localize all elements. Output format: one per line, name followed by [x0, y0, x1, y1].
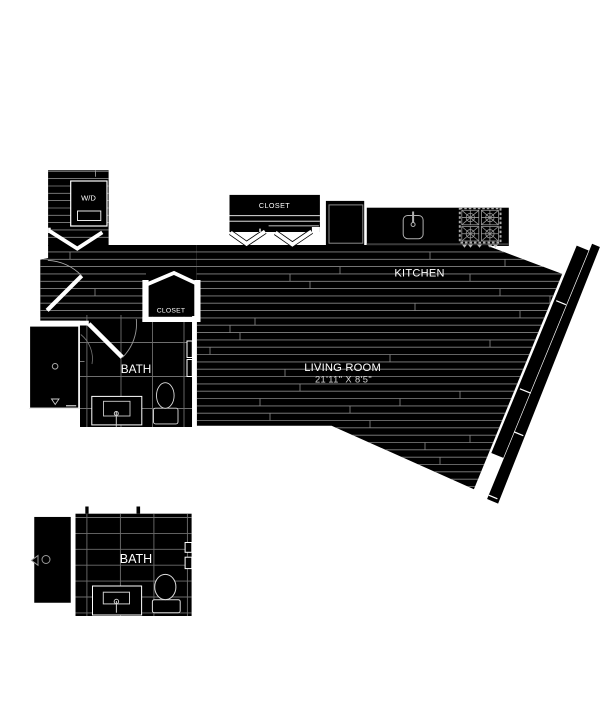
- svg-text:CLOSET: CLOSET: [157, 308, 185, 315]
- svg-text:21'11" X 8'5": 21'11" X 8'5": [315, 374, 372, 384]
- svg-text:LIVING ROOM: LIVING ROOM: [304, 362, 381, 374]
- svg-text:W/D: W/D: [81, 193, 96, 202]
- svg-text:BATH: BATH: [120, 552, 152, 566]
- svg-text:CLOSET: CLOSET: [259, 201, 290, 210]
- svg-text:BATH: BATH: [121, 362, 152, 376]
- svg-text:KITCHEN: KITCHEN: [394, 267, 444, 279]
